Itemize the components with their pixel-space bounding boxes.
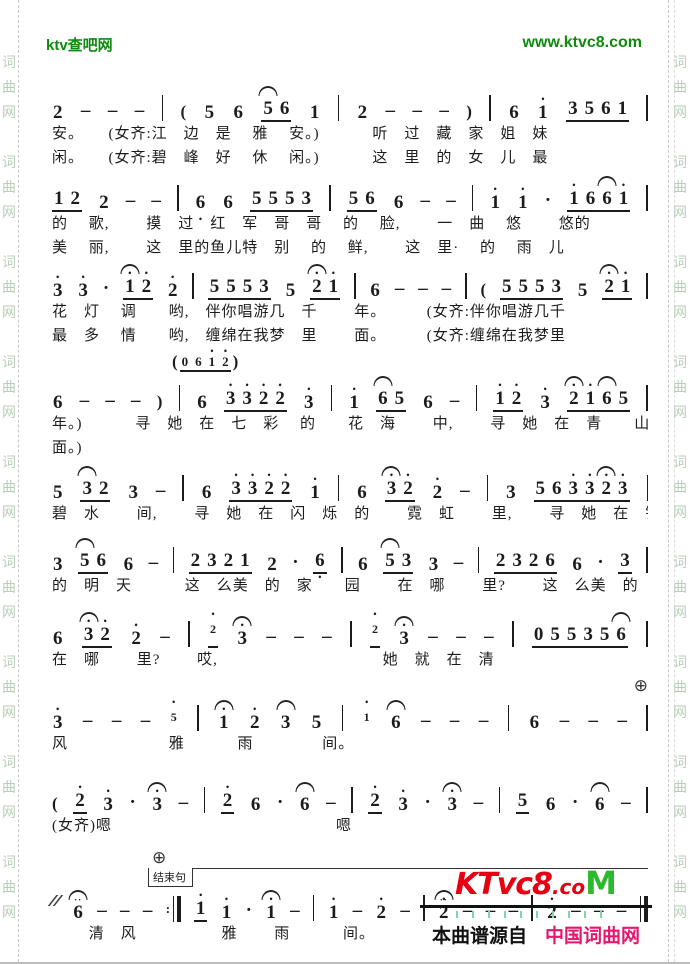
slur-icon: [307, 264, 326, 274]
page-header: ktv查吧网 www.ktvc8.com: [46, 34, 642, 55]
beam-group: 2•: [370, 625, 380, 648]
lyrics-line: (女齐)嗯 嗯: [52, 814, 648, 838]
slur-icon: [233, 616, 252, 626]
slur-icon: [78, 466, 97, 476]
slur-icon: [148, 782, 167, 792]
barline: [338, 475, 340, 501]
note: 1•: [517, 193, 529, 212]
octave-dot-above: •: [104, 617, 107, 626]
note: 2•: [249, 713, 261, 732]
note: 1•: [620, 277, 632, 296]
note: 3: [551, 277, 563, 296]
barline: [197, 705, 199, 731]
note: 3•: [303, 393, 315, 412]
slur-icon: [564, 376, 583, 386]
dash: –: [81, 100, 91, 122]
note: 3: [300, 189, 312, 208]
beam-group: 055356: [532, 625, 628, 648]
note: 3•: [52, 281, 64, 300]
notation-line: 3•–––5•1•2•351•6–––6–––: [52, 698, 648, 732]
score-system: (061•2•)6–––)63•3•2•2•3•1•656–1•2•3•2•1•…: [52, 350, 648, 460]
note: 3•: [539, 393, 551, 412]
note: 3•: [568, 479, 580, 498]
note: 6: [364, 189, 376, 208]
octave-dot-above: •: [589, 381, 592, 390]
note: 3•: [247, 479, 259, 498]
note: 2•: [221, 355, 230, 368]
sheet-music-page: 词 曲 网 词 曲 网 词 曲 网 词 曲 网 词 曲 网 词 曲 网 词 曲 …: [0, 0, 690, 964]
barline: [342, 705, 344, 731]
note: 3•: [241, 389, 253, 408]
octave-dot-above: •: [373, 783, 376, 792]
notation-line: 2–––(565612–––)61•3561: [52, 88, 648, 122]
note: 6: [233, 103, 245, 122]
octave-dot-above: •: [541, 95, 544, 104]
note: 2: [98, 193, 110, 212]
dash: –: [120, 900, 130, 922]
barline: [646, 621, 648, 647]
octave-dot-below: •: [318, 573, 321, 582]
note: 6: [96, 551, 108, 570]
barline: [192, 273, 194, 299]
note: 5: [52, 483, 64, 502]
lyrics-line: 的 歌, 摸 过 红 军 哥 哥 的 脸, 一 曲 悠 悠的: [52, 212, 648, 236]
dash: –: [428, 626, 438, 648]
left-dashed-rule: [18, 0, 19, 962]
beam-group: 3•2•: [82, 625, 112, 648]
notation-line: (2•3•·3•–2•6·6–2•3•·3•–56·6–: [52, 780, 648, 814]
note: 2•: [263, 479, 275, 498]
logo-ticks-decoration: [456, 911, 616, 918]
ktvc8-logo[interactable]: KTvc8.coM: [416, 868, 656, 904]
score-system: 5323–63•3•2•2•1•63•2•2•–3563•3•2•3•碧 水 间…: [52, 468, 648, 526]
dash: –: [83, 710, 93, 732]
lyrics-line: 花 灯 调 哟, 伴你唱游几 千 年。 (女齐:伴你唱游几千: [52, 300, 648, 324]
note: 2•: [141, 277, 153, 296]
slur-icon: [590, 782, 609, 792]
barline: [508, 705, 510, 731]
note: 1•: [328, 277, 340, 296]
beam-group: 5553: [500, 277, 563, 300]
octave-dot-above: •: [621, 471, 624, 480]
octave-dot-above: •: [251, 471, 254, 480]
paren: ): [233, 352, 239, 372]
beam-group: 2•1•: [602, 277, 632, 300]
note: 6: [377, 389, 389, 408]
octave-dot-above: •: [313, 475, 316, 484]
dash: –: [143, 900, 153, 922]
note: 5: [394, 389, 406, 408]
logo-underline: [420, 905, 652, 908]
octave-dot-above: •: [82, 273, 85, 282]
dash: –: [454, 552, 464, 574]
note: 1•: [309, 483, 321, 502]
note: 1•: [489, 193, 501, 212]
note: 2•: [311, 277, 323, 296]
note: 2: [528, 551, 540, 570]
pickup-notes: (061•2•): [172, 350, 238, 372]
beam-group: 5553: [250, 189, 313, 212]
site-name-link[interactable]: ktv查吧网: [46, 34, 113, 55]
barline: [646, 787, 648, 813]
note: 6•: [195, 193, 207, 212]
octave-dot-above: •: [406, 471, 409, 480]
note: 1•: [585, 389, 597, 408]
dash: –: [160, 626, 170, 648]
note: 1: [617, 99, 629, 118]
dash: –: [400, 900, 410, 922]
note: 2•: [603, 277, 615, 296]
music-score: 2–––(565612–––)61•3561安。 (女齐:江 边 是 雅 安。)…: [52, 88, 648, 946]
octave-dot-above: •: [307, 385, 310, 394]
beam-group: 56: [347, 189, 377, 212]
octave-dot-above: •: [172, 698, 175, 707]
lyrics-line: 碧 水 间, 寻 她 在 闪 烁 的 霓 虹 里, 寻 她 在 锦 绣 如画: [52, 502, 648, 526]
note: 3•: [386, 479, 398, 498]
note: 6: [422, 393, 434, 412]
barline: [512, 621, 514, 647]
right-watermark: 词 曲 网 词 曲 网 词 曲 网 词 曲 网 词 曲 网 词 曲 网 词 曲 …: [673, 50, 687, 925]
note: 5: [251, 189, 263, 208]
repeat-end-sign: :: [166, 895, 181, 922]
note: 2•: [99, 625, 111, 644]
note: 1•: [494, 389, 506, 408]
note: 5: [584, 99, 596, 118]
slur-icon: [597, 466, 616, 476]
note: 3•: [584, 479, 596, 498]
beam-group: 2•: [208, 625, 218, 648]
beam-group: 3•3•2•2•: [229, 479, 292, 502]
note: 2•: [402, 479, 414, 498]
note: 3•: [398, 629, 410, 648]
notation-line: 3•3•·1•2•2•555352•1•6–––(555352•1•: [52, 266, 648, 300]
site-url-link[interactable]: www.ktvc8.com: [523, 34, 642, 55]
note: 6: [585, 189, 597, 208]
note: 5: [204, 103, 216, 122]
note: 6: [508, 103, 520, 122]
dash: –: [442, 278, 452, 300]
beam-group: 5553: [208, 277, 271, 300]
note: 3•: [77, 281, 89, 300]
note: 2: [266, 555, 278, 574]
dot: ·: [130, 792, 136, 814]
beam-group: 2326: [494, 551, 557, 574]
barline: [647, 475, 649, 501]
grace-note: 2•: [371, 618, 379, 637]
note: 2•: [274, 389, 286, 408]
paren: ): [466, 102, 472, 122]
note: 1•: [618, 189, 630, 208]
barline: [162, 95, 164, 121]
dash: –: [141, 710, 151, 732]
note: 5: [348, 189, 360, 208]
note: 2•: [74, 791, 86, 810]
barline: [646, 273, 648, 299]
score-system: 3•3•·1•2•2•555352•1•6–––(555352•1•花 灯 调 …: [52, 266, 648, 348]
dot: ·: [292, 552, 298, 574]
note: 6: [594, 795, 606, 814]
barline: [354, 273, 356, 299]
octave-dot-above: •: [145, 269, 148, 278]
note: 6: [52, 393, 64, 412]
note: 3: [511, 551, 523, 570]
octave-dot-above: •: [234, 471, 237, 480]
logo-text-m: M: [585, 864, 617, 902]
beam-group: 2•: [73, 791, 87, 814]
note: 3: [428, 555, 440, 574]
left-watermark: 词 曲 网 词 曲 网 词 曲 网 词 曲 网 词 曲 网 词 曲 网 词 曲 …: [2, 50, 16, 925]
note: 3: [52, 555, 64, 574]
octave-dot-above: •: [353, 385, 356, 394]
note: 6: [544, 551, 556, 570]
dash: –: [589, 710, 599, 732]
note: 6: [571, 555, 583, 574]
lyrics-line: 面。): [52, 436, 648, 460]
barline: [646, 385, 648, 411]
dash: –: [617, 710, 627, 732]
barline: [173, 547, 175, 573]
octave-dot-above: •: [134, 621, 137, 630]
barline: [179, 385, 181, 411]
slur-icon: [120, 264, 139, 274]
octave-dot-above: •: [246, 381, 249, 390]
grace-note: 2•: [209, 618, 217, 637]
source-caption: 本曲谱源自中国词曲网: [416, 921, 656, 948]
dot: ·: [103, 278, 109, 300]
dash: –: [156, 480, 166, 502]
beam-group: 061•2•: [180, 355, 231, 372]
note: 5: [384, 551, 396, 570]
beam-group: 3561: [566, 99, 629, 122]
dot: ·: [277, 792, 283, 814]
slur-icon: [386, 700, 405, 710]
dot: ·: [572, 792, 578, 814]
octave-dot-above: •: [267, 471, 270, 480]
lyrics-line: 的 明 天 这 么美 的 家 园 在 哪 里? 这 么美 的 家 园: [52, 574, 648, 598]
lyrics-line: 安。 (女齐:江 边 是 雅 安。) 听 过 藏 家 姐 妹: [52, 122, 648, 146]
note: 6: [545, 795, 557, 814]
score-system: (2•3•·3•–2•6·6–2•3•·3•–56·6–(女齐)嗯 嗯: [52, 768, 648, 838]
caption-text: 本曲谱源自: [432, 926, 527, 947]
note: 3•: [617, 479, 629, 498]
note: 1•: [195, 899, 207, 918]
note: 5: [225, 277, 237, 296]
dash: –: [474, 792, 484, 814]
note: 1•: [328, 903, 340, 922]
dash: –: [326, 792, 336, 814]
note: 3: [258, 277, 270, 296]
note: 6: [369, 281, 381, 300]
note: 5: [535, 479, 547, 498]
note: 5: [285, 281, 297, 300]
note: 6: [601, 389, 613, 408]
dash: –: [484, 626, 494, 648]
octave-dot-above: •: [373, 610, 376, 619]
dash: –: [421, 190, 431, 212]
note: 6: [196, 393, 208, 412]
slur-icon: [262, 890, 281, 900]
barline: [646, 185, 648, 211]
score-system: 63•2•2•–2•3•–––2•3•–––055356在 哪 里? 哎, 她 …: [52, 614, 648, 672]
beam-group: 3•2•: [385, 479, 415, 502]
barline: [188, 621, 190, 647]
dash: –: [131, 390, 141, 412]
barline: [646, 547, 648, 573]
octave-dot-above: •: [572, 181, 575, 190]
note: 6: [250, 795, 262, 814]
barline: [646, 95, 648, 121]
note: 6: [356, 483, 368, 502]
note: 6: [600, 99, 612, 118]
score-system: 2–––(565612–––)61•3561安。 (女齐:江 边 是 雅 安。)…: [52, 88, 648, 170]
logo-text-dot: .co: [552, 875, 585, 899]
barline: [182, 475, 184, 501]
note: 2•: [167, 281, 179, 300]
notation-line: 122––6•65553566––1•1•·1•661•: [52, 178, 648, 212]
barline: [313, 895, 315, 921]
beam-group: 2•: [368, 791, 382, 814]
score-system: ⊕3•–––5•1•2•351•6–––6–––风 雅 雨 间。: [52, 684, 648, 756]
grace-note: 5•: [170, 706, 178, 725]
note: 5: [79, 551, 91, 570]
note: 3•: [52, 713, 64, 732]
notation-line: 6–––)63•3•2•2•3•1•656–1•2•3•2•1•65: [52, 378, 648, 412]
fermata-dots: ··: [74, 896, 82, 905]
dash: –: [80, 390, 90, 412]
note: 5: [517, 791, 529, 810]
barline: [338, 95, 340, 121]
octave-dot-above: •: [572, 471, 575, 480]
note: 3•: [230, 479, 242, 498]
slur-icon: [276, 700, 295, 710]
octave-dot-above: •: [436, 475, 439, 484]
octave-dot-above: •: [380, 895, 383, 904]
slur-icon: [597, 376, 616, 386]
octave-dot-above: •: [199, 891, 202, 900]
octave-dot-above: •: [210, 347, 213, 356]
slur-icon: [612, 612, 631, 622]
barline: [476, 385, 478, 411]
dash: –: [322, 626, 332, 648]
notation-line: 5323–63•3•2•2•1•63•2•2•–3563•3•2•3•: [52, 468, 648, 502]
beam-group: 1•2•: [493, 389, 523, 412]
dash: –: [105, 390, 115, 412]
note: 5: [577, 281, 589, 300]
note: 1•: [221, 903, 233, 922]
note: 6: [194, 355, 203, 368]
note: 6: [52, 629, 64, 648]
octave-dot-above: •: [624, 269, 627, 278]
dash: –: [353, 900, 363, 922]
paren: (: [172, 352, 178, 372]
dot: ·: [545, 190, 551, 212]
note: 2•: [376, 903, 388, 922]
dash: –: [395, 278, 405, 300]
note: 5: [209, 277, 221, 296]
note: 2: [357, 103, 369, 122]
dash: –: [479, 710, 489, 732]
note: 1: [239, 551, 251, 570]
notation-line: 63•2•2•–2•3•–––2•3•–––055356: [52, 614, 648, 648]
note: 5: [242, 277, 254, 296]
note: 3: [619, 551, 631, 570]
beam-group: 12: [52, 189, 82, 212]
octave-dot-above: •: [224, 347, 227, 356]
octave-dot-above: •: [78, 783, 81, 792]
note: 1•: [348, 393, 360, 412]
score-system: 122––6•65553566––1•1•·1•661•的 歌, 摸 过 红 军…: [52, 178, 648, 260]
lyrics-line: 闲。 (女齐:碧 峰 好 休 闲。) 这 里 的 女 儿 最: [52, 146, 648, 170]
note: 5: [518, 277, 530, 296]
beam-group: 56: [78, 551, 108, 574]
note: 3: [81, 479, 93, 498]
note: 2: [190, 551, 202, 570]
slur-icon: [295, 782, 314, 792]
dash: –: [149, 552, 159, 574]
caption-site-link[interactable]: 中国词曲网: [545, 926, 640, 947]
note: 6: [123, 555, 135, 574]
right-dashed-rule: [668, 0, 669, 962]
barline: [478, 547, 480, 573]
lyrics-line: 在 哪 里? 哎, 她 就 在 清: [52, 648, 648, 672]
footer: KTvc8.coM 本曲谱源自中国词曲网: [416, 868, 656, 948]
note: 5: [566, 625, 578, 644]
dash: –: [294, 626, 304, 648]
octave-dot-above: •: [229, 381, 232, 390]
dash: –: [446, 190, 456, 212]
note: 2•: [280, 479, 292, 498]
note: 5: [599, 625, 611, 644]
dash: –: [290, 900, 300, 922]
paren: (: [52, 794, 58, 814]
octave-dot-above: •: [332, 895, 335, 904]
barline: [487, 475, 489, 501]
dash: –: [179, 792, 189, 814]
dash: –: [266, 626, 276, 648]
octave-dot-above: •: [262, 381, 265, 390]
octave-dot-above: •: [107, 787, 110, 796]
slur-icon: [75, 538, 94, 548]
note: 3: [567, 99, 579, 118]
note: 1•: [218, 713, 230, 732]
dot: ·: [425, 792, 431, 814]
note: 2•: [568, 389, 580, 408]
slur-icon: [79, 612, 98, 622]
note: 5: [501, 277, 513, 296]
octave-dot-above: •: [211, 610, 214, 619]
note: 3: [505, 483, 517, 502]
coda-icon: ⊕: [634, 676, 648, 696]
dash: –: [97, 900, 107, 922]
note: 3•: [446, 795, 458, 814]
dash: –: [456, 626, 466, 648]
note: 1: [53, 189, 65, 208]
beam-group: 563•3•2•3•: [534, 479, 630, 502]
ending-label: 结束句: [148, 868, 193, 887]
paren: (: [181, 102, 187, 122]
octave-dot-above: •: [253, 705, 256, 714]
octave-dot-above: •: [544, 385, 547, 394]
dash: –: [421, 710, 431, 732]
note: 2: [495, 551, 507, 570]
note: 3: [401, 551, 413, 570]
octave-dot-above: •: [494, 185, 497, 194]
note: 6: [222, 193, 234, 212]
dash: –: [439, 100, 449, 122]
note: 5: [618, 389, 630, 408]
note: 1•: [537, 103, 549, 122]
beam-group: 2•1•65: [567, 389, 630, 412]
